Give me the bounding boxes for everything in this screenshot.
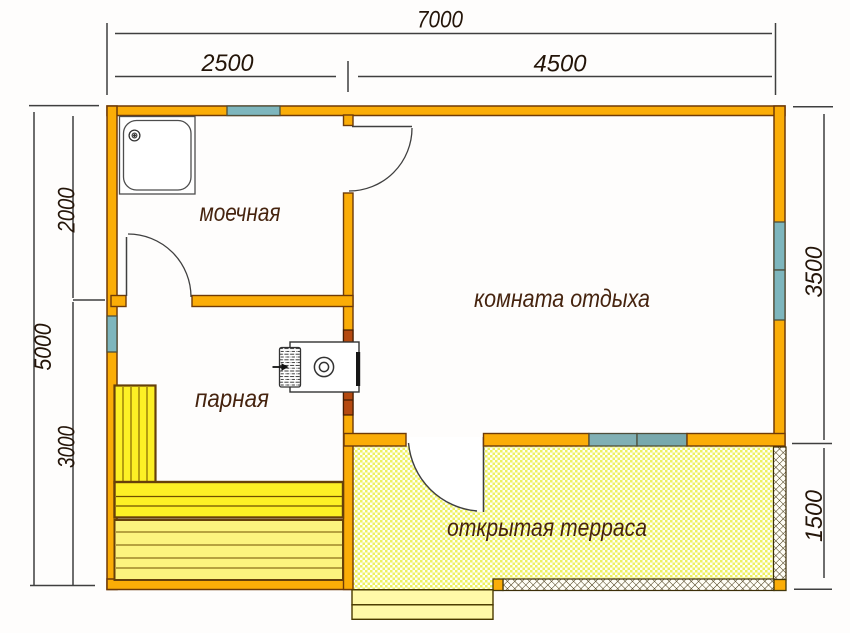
svg-text:комната отдыха: комната отдыха	[474, 285, 650, 313]
svg-text:моечная: моечная	[200, 199, 281, 227]
svg-text:2500: 2500	[201, 50, 255, 77]
svg-text:3000: 3000	[54, 425, 81, 468]
svg-text:открытая терраса: открытая терраса	[447, 514, 647, 542]
svg-text:5000: 5000	[30, 323, 57, 371]
svg-text:3500: 3500	[801, 246, 828, 298]
svg-text:4500: 4500	[534, 51, 588, 78]
svg-text:2000: 2000	[54, 187, 81, 233]
svg-text:1500: 1500	[801, 489, 828, 542]
svg-text:7000: 7000	[417, 7, 464, 34]
svg-text:парная: парная	[195, 385, 269, 413]
